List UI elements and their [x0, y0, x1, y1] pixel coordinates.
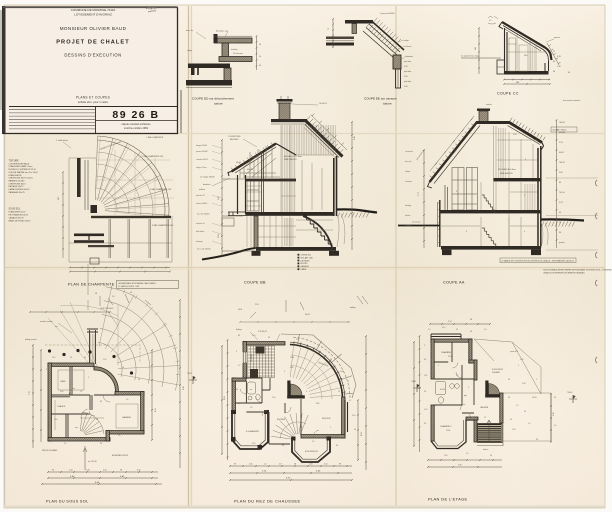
svg-text:bacs alu: bacs alu [405, 161, 411, 163]
svg-text:1.2: 1.2 [264, 464, 266, 466]
svg-text:2.4: 2.4 [126, 399, 128, 401]
svg-text:1. BAS CHARPENTE: 1. BAS CHARPENTE [146, 136, 164, 139]
svg-text:90: 90 [234, 464, 236, 466]
svg-text:volige: volige [187, 50, 192, 52]
svg-text:PANNEAU 63x75: PANNEAU 63x75 [9, 191, 26, 194]
svg-text:1.20: 1.20 [103, 359, 106, 361]
svg-text:2.10: 2.10 [52, 357, 55, 359]
svg-text:90: 90 [354, 429, 356, 431]
svg-text:balcon: balcon [483, 449, 488, 451]
svg-text:11 M: 11 M [446, 430, 450, 432]
svg-text:24: 24 [259, 65, 261, 67]
svg-text:2.4: 2.4 [484, 329, 486, 331]
svg-text:2.40: 2.40 [404, 86, 408, 88]
svg-text:GALERIE: GALERIE [480, 406, 489, 409]
svg-text:souche: souche [486, 104, 492, 106]
svg-text:16.5x16.5: 16.5x16.5 [319, 103, 327, 105]
svg-text:MUR DE SOUBASS.: MUR DE SOUBASS. [42, 449, 58, 452]
svg-text:claude marullaz architecte: claude marullaz architecte [121, 123, 151, 126]
svg-text:solives 63x180: solives 63x180 [196, 203, 207, 205]
svg-text:2.60: 2.60 [218, 196, 220, 200]
svg-text:58: 58 [424, 391, 426, 393]
svg-text:744.20: 744.20 [187, 373, 192, 375]
svg-text:PROJET DE CHALET: PROJET DE CHALET [56, 40, 130, 46]
svg-text:58: 58 [508, 397, 510, 399]
svg-text:COUVERTURE BACS: COUVERTURE BACS [9, 162, 30, 165]
svg-text:mélèze: mélèze [405, 215, 411, 217]
svg-text:dallage porche: dallage porche [25, 339, 37, 341]
svg-text:dallage: dallage [236, 329, 242, 331]
svg-text:90: 90 [318, 351, 320, 353]
svg-text:isolation: isolation [231, 48, 238, 51]
svg-text:FAITAGE 63x75: FAITAGE 63x75 [9, 185, 25, 188]
svg-text:2.4: 2.4 [306, 347, 308, 349]
svg-text:DESSINS D'EXECUTION: DESSINS D'EXECUTION [64, 53, 121, 58]
svg-text:7.40: 7.40 [458, 465, 462, 467]
svg-text:58: 58 [470, 331, 472, 333]
svg-text:58: 58 [336, 445, 338, 447]
svg-text:95: 95 [70, 357, 72, 359]
svg-text:58: 58 [294, 464, 296, 466]
svg-text:BOW WINDOW: BOW WINDOW [305, 451, 318, 453]
svg-text:7at 40: 7at 40 [148, 7, 157, 11]
svg-text:24: 24 [259, 44, 261, 46]
svg-text:80: 80 [238, 335, 240, 337]
svg-text:8.05: 8.05 [224, 396, 226, 400]
svg-text:50: 50 [259, 56, 261, 58]
svg-text:ext.: ext. [55, 325, 58, 328]
svg-text:CHAUFF.: CHAUFF. [57, 405, 66, 408]
svg-text:2.10: 2.10 [69, 470, 73, 472]
svg-text:BACS ALU ISOL 8mm: BACS ALU ISOL 8mm [284, 155, 302, 158]
svg-text:40: 40 [559, 212, 561, 214]
svg-text:petit bois: petit bois [404, 80, 411, 83]
svg-text:1.40: 1.40 [557, 66, 561, 68]
svg-text:2.9: 2.9 [312, 441, 314, 443]
svg-text:2.35: 2.35 [424, 375, 427, 377]
svg-text:morzine octobre 1981: morzine octobre 1981 [124, 127, 149, 130]
svg-text:72: 72 [328, 28, 330, 30]
svg-text:esc.: esc. [75, 427, 79, 429]
svg-text:3.85: 3.85 [316, 403, 319, 405]
svg-text:CHAMBRE 1: CHAMBRE 1 [441, 351, 454, 354]
svg-text:63x75: 63x75 [559, 152, 564, 154]
svg-text:3.50: 3.50 [137, 470, 141, 472]
svg-text:63: 63 [553, 61, 555, 63]
svg-text:FELTEX: FELTEX [301, 263, 309, 265]
svg-text:1.90: 1.90 [54, 419, 57, 421]
svg-text:S. A MANGER: S. A MANGER [246, 430, 259, 433]
svg-text:bacs alu: bacs alu [186, 30, 193, 32]
svg-text:2.28 63x75: 2.28 63x75 [258, 331, 267, 333]
svg-text:2.35: 2.35 [249, 464, 252, 466]
svg-text:bandeau: bandeau [203, 184, 210, 186]
svg-text:98: 98 [424, 359, 426, 361]
svg-text:89 26 B: 89 26 B [112, 109, 159, 121]
svg-text:2.1: 2.1 [338, 391, 340, 393]
svg-text:10 chevrons: 10 chevrons [233, 53, 243, 55]
svg-text:3.45: 3.45 [553, 412, 555, 416]
svg-text:5: 5 [348, 381, 349, 383]
svg-text:BACS ALU: BACS ALU [230, 138, 239, 141]
svg-text:PARE VAPEUR: PARE VAPEUR [500, 172, 513, 175]
svg-text:PARE VAPEUR: PARE VAPEUR [284, 158, 297, 161]
svg-text:2.9: 2.9 [279, 464, 281, 466]
svg-text:PLAN DU SOUS SOL: PLAN DU SOUS SOL [46, 500, 89, 504]
svg-text:CHEVRONS 8x23: CHEVRONS 8x23 [9, 183, 27, 185]
svg-text:2.10: 2.10 [324, 464, 327, 466]
svg-text:5: 5 [88, 377, 89, 379]
svg-text:ALIMENTATION EDF: ALIMENTATION EDF [112, 454, 128, 457]
svg-text:3.65: 3.65 [290, 367, 294, 369]
svg-text:CUISINE: CUISINE [251, 353, 253, 362]
svg-text:1.2: 1.2 [296, 339, 298, 341]
svg-text:COMMUNE DE MORZINE 74110: COMMUNE DE MORZINE 74110 [71, 8, 116, 12]
svg-text:2.40: 2.40 [404, 76, 408, 78]
svg-text:90: 90 [524, 411, 526, 413]
svg-text:tout venant compacté: tout venant compacté [563, 99, 580, 102]
svg-text:PLAN DU REZ DE CHAUSSEE: PLAN DU REZ DE CHAUSSEE [234, 499, 301, 504]
svg-text:90: 90 [554, 397, 556, 399]
svg-text:58: 58 [122, 367, 124, 369]
svg-text:63x75: 63x75 [532, 397, 537, 399]
svg-text:58: 58 [330, 359, 332, 361]
svg-text:GORGE 80L: GORGE 80L [301, 255, 311, 257]
svg-text:2.9: 2.9 [466, 453, 468, 455]
svg-text:90: 90 [138, 379, 140, 381]
svg-text:NIV. HAUT DALLE: NIV. HAUT DALLE [553, 129, 568, 132]
svg-text:toiture: toiture [214, 102, 223, 106]
svg-text:1.2: 1.2 [238, 365, 240, 367]
svg-text:SOUS PENTE: SOUS PENTE [492, 369, 504, 371]
svg-text:98: 98 [120, 470, 122, 472]
svg-text:2.28: 2.28 [559, 142, 563, 144]
svg-text:4.10: 4.10 [155, 408, 157, 412]
svg-text:744.20: 744.20 [559, 162, 565, 164]
svg-text:2 BAS CHARPENTE 200: 2 BAS CHARPENTE 200 [152, 224, 173, 227]
svg-text:chevron: chevron [405, 46, 411, 48]
svg-text:1.2: 1.2 [300, 427, 302, 429]
svg-text:2.4: 2.4 [250, 407, 252, 409]
svg-text:1.40: 1.40 [444, 455, 447, 457]
svg-text:PLAN DE L'ETAGE: PLAN DE L'ETAGE [428, 497, 468, 502]
svg-text:dallage: dallage [350, 307, 356, 309]
svg-text:5: 5 [140, 409, 141, 411]
svg-text:12 M: 12 M [290, 357, 294, 359]
svg-text:8.40: 8.40 [354, 136, 356, 140]
svg-text:niv. plancher bas étage: niv. plancher bas étage [461, 55, 479, 58]
svg-text:pannes: pannes [251, 157, 257, 159]
svg-text:1.40: 1.40 [309, 464, 312, 466]
svg-text:BEAU DE FOND 63x75: BEAU DE FOND 63x75 [9, 219, 32, 222]
svg-text:VOLIGE SAPINE lam 2ch 70x8: VOLIGE SAPINE lam 2ch 70x8 [9, 171, 39, 174]
svg-text:COUPE BB: COUPE BB [244, 281, 266, 285]
svg-text:1.40: 1.40 [424, 409, 427, 411]
svg-text:SOUS SOL: SOUS SOL [9, 209, 21, 211]
svg-text:LOTISSEMENT D'AVORIAZ: LOTISSEMENT D'AVORIAZ [74, 12, 112, 16]
svg-text:90: 90 [424, 423, 426, 425]
svg-text:ISORELLO SUPERIOR 12 M: ISORELLO SUPERIOR 12 M [9, 169, 36, 171]
svg-text:746.80: 746.80 [411, 381, 416, 383]
svg-text:58: 58 [508, 379, 510, 381]
svg-text:bardage: bardage [405, 204, 411, 207]
svg-text:5: 5 [330, 427, 331, 429]
svg-text:mélèze: mélèze [199, 189, 205, 191]
svg-text:368: 368 [516, 82, 519, 84]
svg-text:2.40: 2.40 [404, 66, 408, 68]
svg-text:5: 5 [536, 379, 537, 381]
svg-text:85: 85 [100, 401, 102, 403]
svg-text:60: 60 [84, 357, 86, 359]
svg-text:5: 5 [468, 387, 469, 389]
svg-text:1.40: 1.40 [340, 371, 343, 373]
svg-text:1.90: 1.90 [272, 397, 275, 399]
svg-text:DRAIN: DRAIN [301, 268, 307, 271]
svg-text:90: 90 [130, 292, 132, 294]
svg-text:2 BAS CHARPENTE 200: 2 BAS CHARPENTE 200 [150, 188, 171, 191]
svg-text:2.28: 2.28 [255, 304, 259, 306]
svg-text:90: 90 [568, 72, 570, 74]
svg-text:5: 5 [284, 371, 285, 373]
svg-text:CHEVRONS 63x75 10mm: CHEVRONS 63x75 10mm [9, 178, 34, 180]
svg-text:toiture: toiture [383, 102, 392, 106]
svg-text:niv. étage 746.80: niv. étage 746.80 [200, 176, 214, 179]
svg-text:5: 5 [46, 369, 47, 371]
svg-text:chevrons: chevrons [405, 180, 412, 183]
svg-text:2.28: 2.28 [513, 134, 517, 136]
svg-text:COUVERTURE: COUVERTURE [228, 136, 241, 138]
svg-text:2.40: 2.40 [520, 359, 523, 361]
svg-text:90: 90 [553, 71, 555, 73]
svg-text:chevrons 63x75: chevrons 63x75 [196, 158, 208, 161]
svg-text:COUPE EE sur cassure: COUPE EE sur cassure [364, 97, 397, 101]
svg-text:PLANCHER 20cm: PLANCHER 20cm [9, 210, 26, 213]
svg-text:2.10: 2.10 [448, 321, 452, 323]
svg-text:ISOLANT 10M: ISOLANT 10M [301, 256, 313, 259]
svg-text:1.2: 1.2 [80, 391, 82, 393]
svg-text:90: 90 [456, 329, 458, 331]
svg-text:2.28: 2.28 [557, 56, 561, 58]
svg-text:isolation: isolation [405, 224, 411, 227]
svg-text:2.4: 2.4 [112, 296, 115, 298]
svg-text:58: 58 [100, 443, 102, 445]
svg-text:2.1: 2.1 [484, 417, 486, 419]
svg-text:90: 90 [236, 389, 238, 391]
svg-text:gravier: gravier [559, 241, 565, 244]
svg-text:SEJOUR: SEJOUR [322, 418, 331, 420]
svg-text:262: 262 [475, 47, 477, 50]
svg-text:volige: volige [404, 40, 409, 42]
svg-text:2.28: 2.28 [522, 383, 525, 385]
svg-text:S.D.B.: S.D.B. [440, 389, 446, 391]
svg-text:98: 98 [282, 445, 284, 447]
svg-text:2.60: 2.60 [559, 172, 563, 174]
svg-text:9.90: 9.90 [183, 386, 185, 390]
svg-text:90: 90 [559, 232, 561, 234]
svg-text:63x180: 63x180 [247, 169, 253, 171]
svg-text:niv. rez 744.20: niv. rez 744.20 [197, 213, 209, 216]
svg-text:COUPE CC: COUPE CC [497, 92, 519, 96]
svg-text:bandeau: bandeau [406, 56, 413, 58]
svg-text:CHAMBRE 2: CHAMBRE 2 [440, 425, 453, 428]
svg-text:couverture: couverture [405, 150, 413, 153]
svg-text:plancher 27: plancher 27 [196, 194, 205, 197]
svg-text:niv. 741.60: niv. 741.60 [88, 461, 97, 463]
svg-text:petit bois: petit bois [404, 70, 411, 73]
svg-text:petit bois: petit bois [404, 60, 411, 63]
svg-text:LES MATERIAUX BOIS PANNES CHA: LES MATERIAUX BOIS PANNES CHAR CHARPIL [118, 282, 156, 285]
svg-text:12: 12 [64, 443, 66, 445]
svg-text:58: 58 [268, 337, 270, 339]
svg-text:80: 80 [559, 182, 561, 184]
svg-text:63x75: 63x75 [305, 314, 310, 316]
svg-text:ENTREE: ENTREE [277, 419, 286, 421]
svg-text:58: 58 [96, 419, 98, 421]
svg-text:COUPE AA: COUPE AA [443, 281, 465, 285]
svg-text:PLANS ET COUPES: PLANS ET COUPES [76, 95, 110, 99]
svg-text:PANNES 63x180: PANNES 63x180 [9, 179, 26, 182]
svg-text:58: 58 [238, 403, 240, 405]
svg-text:ETANCHEITE: ETANCHEITE [9, 174, 23, 177]
svg-text:ISOL BACS ALU 8mm: ISOL BACS ALU 8mm [498, 168, 516, 171]
svg-text:voliges: voliges [405, 171, 410, 173]
svg-text:drainage: drainage [196, 240, 203, 243]
svg-text:98: 98 [490, 455, 492, 457]
svg-text:90: 90 [52, 470, 54, 472]
svg-text:demi-bac alu: demi-bac alu [216, 31, 227, 33]
svg-text:16 M 2.28 63x75: 16 M 2.28 63x75 [100, 308, 113, 310]
svg-text:5: 5 [518, 365, 519, 367]
svg-text:wc: wc [250, 389, 252, 391]
svg-text:pannes: pannes [554, 37, 560, 39]
svg-text:CAVE: CAVE [60, 380, 66, 383]
svg-text:2.28: 2.28 [559, 202, 563, 204]
svg-text:pannes 63x180: pannes 63x180 [196, 151, 208, 153]
svg-text:2.9: 2.9 [118, 435, 120, 437]
svg-text:746.80: 746.80 [559, 122, 565, 124]
svg-text:1.40: 1.40 [86, 470, 90, 472]
svg-text:1.2: 1.2 [516, 405, 518, 407]
svg-text:57: 57 [559, 222, 561, 224]
svg-text:COUPE DD sur décrochement: COUPE DD sur décrochement [192, 97, 234, 101]
svg-text:1.2: 1.2 [456, 375, 458, 377]
svg-text:niv. s.sol 741.60: niv. s.sol 741.60 [197, 249, 211, 251]
svg-text:LAMBOURDES 63x75: LAMBOURDES 63x75 [9, 188, 31, 191]
svg-text:2.35: 2.35 [103, 470, 107, 472]
svg-text:98: 98 [470, 319, 472, 321]
svg-text:16 M: 16 M [238, 309, 242, 311]
svg-text:2.17: 2.17 [418, 192, 420, 196]
svg-text:63x180: 63x180 [559, 132, 565, 134]
svg-text:2 BAS CHARPENTE 200: 2 BAS CHARPENTE 200 [142, 155, 163, 158]
svg-text:58: 58 [536, 439, 538, 441]
svg-text:749.40: 749.40 [567, 392, 572, 394]
svg-text:dalle béton: dalle béton [196, 230, 204, 233]
svg-text:CT SAPIN DU NORD 1 CAT: CT SAPIN DU NORD 1 CAT [118, 285, 139, 288]
svg-text:pente 60%: pente 60% [510, 350, 519, 353]
svg-text:MONSIEUR OLIVIER BAUD: MONSIEUR OLIVIER BAUD [60, 26, 127, 31]
svg-text:isolation 10: isolation 10 [196, 222, 205, 225]
svg-text:3.45: 3.45 [60, 391, 63, 393]
svg-text:5: 5 [424, 345, 425, 347]
svg-text:741.60: 741.60 [559, 192, 565, 194]
svg-text:niv. terrain: niv. terrain [412, 221, 420, 224]
svg-text:1.2: 1.2 [528, 423, 530, 425]
svg-text:5: 5 [438, 365, 439, 367]
svg-text:voliges 27mm: voliges 27mm [196, 167, 207, 169]
svg-text:5: 5 [236, 351, 237, 353]
svg-text:faitage 63x180: faitage 63x180 [196, 144, 207, 147]
svg-text:90: 90 [510, 419, 512, 421]
svg-text:1.2: 1.2 [428, 329, 430, 331]
svg-text:57: 57 [553, 51, 555, 53]
svg-text:2 pannes 63x180: 2 pannes 63x180 [380, 13, 395, 15]
svg-text:2.28: 2.28 [512, 429, 515, 431]
svg-text:1. dalle béton: 1. dalle béton [56, 139, 68, 142]
svg-text:CANALIS 63x75: CANALIS 63x75 [9, 216, 25, 219]
svg-text:échelle 2cm. pour 1 mètre: échelle 2cm. pour 1 mètre [78, 100, 109, 104]
svg-text:FEUTRAISON 63x75: FEUTRAISON 63x75 [9, 213, 29, 216]
svg-text:PLANCHER LAME 27mm: PLANCHER LAME 27mm [9, 165, 33, 168]
svg-text:2.10: 2.10 [442, 327, 445, 329]
svg-text:PLACARD: PLACARD [492, 371, 501, 374]
svg-text:GRAVIER: GRAVIER [301, 265, 310, 268]
svg-text:5: 5 [306, 391, 307, 393]
svg-text:PLAN DE CHARPENTE: PLAN DE CHARPENTE [68, 283, 115, 287]
svg-text:2.35: 2.35 [252, 443, 255, 445]
svg-text:98: 98 [339, 464, 341, 466]
svg-text:12 M: 12 M [448, 356, 452, 358]
svg-text:7.70: 7.70 [29, 391, 31, 395]
svg-text:montée escalier: montée escalier [40, 320, 53, 323]
svg-text:DELTA MS: DELTA MS [301, 259, 311, 262]
svg-text:58: 58 [95, 293, 97, 295]
svg-text:2.4: 2.4 [554, 425, 556, 427]
svg-text:63x75: 63x75 [236, 162, 241, 164]
svg-text:TOITURE: TOITURE [9, 161, 20, 163]
svg-text:4.05: 4.05 [361, 432, 363, 436]
svg-text:2.40: 2.40 [352, 415, 355, 417]
svg-text:GARAGE: GARAGE [122, 416, 132, 419]
svg-text:2.60: 2.60 [218, 234, 220, 238]
